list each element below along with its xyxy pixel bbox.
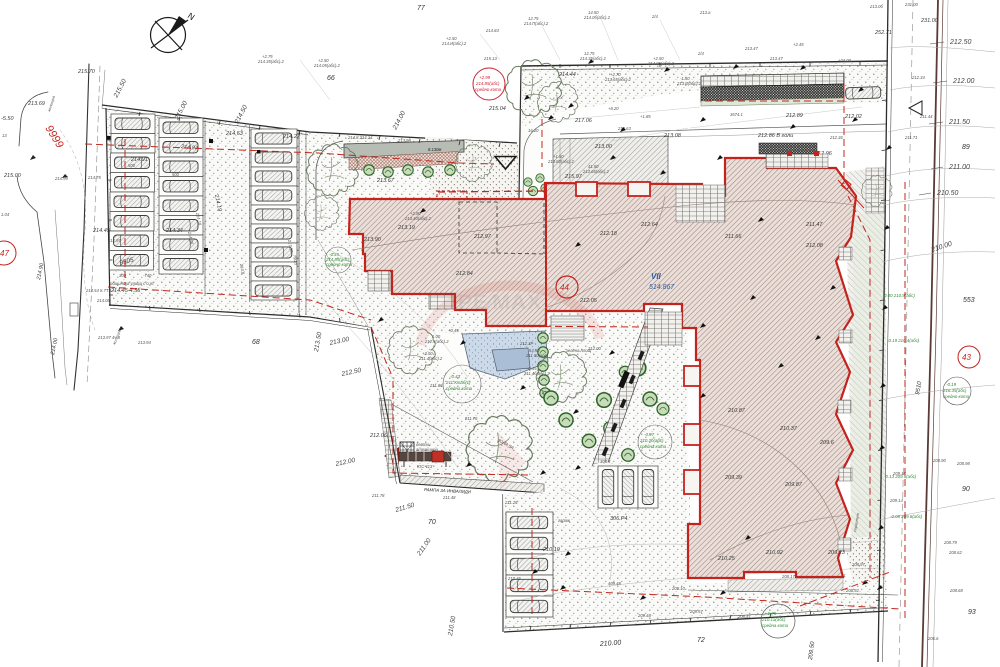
- svg-text:210.37: 210.37: [779, 426, 798, 432]
- svg-text:208.92: 208.92: [845, 588, 859, 593]
- svg-text:211.4б(абс).2: 211.4б(абс).2: [523, 371, 550, 376]
- svg-text:-0.97: -0.97: [644, 432, 655, 437]
- svg-text:210.46: 210.46: [507, 576, 521, 581]
- svg-text:77: 77: [417, 5, 426, 12]
- svg-text:211.86: 211.86: [429, 383, 443, 388]
- svg-text:211.76: 211.76: [464, 416, 478, 421]
- svg-text:210.25: 210.25: [717, 556, 736, 562]
- svg-text:214.05(абс).2: 214.05(абс).2: [647, 61, 675, 66]
- svg-text:212.00: 212.00: [952, 78, 975, 85]
- svg-text:213.а: 213.а: [699, 10, 711, 15]
- svg-text:300: 300: [119, 273, 127, 278]
- svg-text:213.40(абс).2: 213.40(абс).2: [404, 216, 432, 221]
- svg-text:214.84: 214.84: [485, 28, 499, 33]
- svg-text:214.И(абс).2: 214.И(абс).2: [441, 41, 467, 46]
- svg-text:215.70: 215.70: [77, 69, 96, 75]
- svg-text:213.08: 213.08: [663, 133, 682, 139]
- svg-text:-0.08 209.6(абс): -0.08 209.6(абс): [890, 514, 923, 519]
- svg-text:209.14: 209.14: [889, 498, 903, 503]
- svg-text:212.86 В голи: 212.86 В голи: [757, 133, 793, 139]
- svg-text:208.97: 208.97: [851, 562, 865, 567]
- svg-text:212.00: 212.00: [587, 346, 601, 351]
- svg-text:214.08: 214.08: [96, 298, 110, 303]
- svg-text:208.68: 208.68: [949, 588, 963, 593]
- svg-text:212.64: 212.64: [640, 222, 658, 228]
- svg-text:213.19: 213.19: [397, 225, 415, 231]
- svg-text:409.48: 409.48: [608, 581, 621, 586]
- svg-text:РЕ⁄МАХ: РЕ⁄МАХ: [458, 291, 542, 314]
- svg-text:252.71: 252.71: [874, 30, 892, 36]
- svg-text:2/4: 2/4: [651, 14, 658, 19]
- svg-text:206.6: 206.6: [927, 636, 939, 641]
- svg-text:213.90: 213.90: [363, 237, 382, 243]
- svg-text:210.19: 210.19: [542, 547, 560, 553]
- svg-text:70: 70: [428, 519, 436, 526]
- svg-text:209.48: 209.48: [637, 613, 651, 618]
- svg-text:212.02: 212.02: [844, 114, 862, 120]
- svg-text:211.71: 211.71: [904, 135, 918, 140]
- svg-text:217.06: 217.06: [574, 118, 593, 124]
- svg-text:89: 89: [962, 144, 970, 151]
- svg-text:214.45: 214.45: [92, 228, 111, 234]
- svg-text:211.50: 211.50: [948, 119, 970, 126]
- svg-text:214.44: 214.44: [558, 72, 576, 78]
- svg-text:208.41: 208.41: [737, 614, 751, 619]
- svg-text:215.04: 215.04: [488, 106, 506, 112]
- svg-text:500: 500: [172, 172, 180, 177]
- svg-text:8.130м: 8.130м: [428, 147, 441, 152]
- svg-text:+2.45: +2.45: [793, 42, 804, 47]
- svg-text:211.47: 211.47: [805, 222, 823, 228]
- svg-text:43: 43: [962, 353, 971, 362]
- svg-text:212.08: 212.08: [805, 243, 824, 249]
- svg-text:212.50: 212.50: [949, 39, 972, 46]
- svg-text:210.50: 210.50: [936, 190, 959, 197]
- svg-text:212.4(абс).2: 212.4(абс).2: [424, 339, 449, 344]
- svg-text:214.34: 214.34: [165, 228, 183, 234]
- svg-text:213.00: 213.00: [594, 144, 613, 150]
- svg-text:3674.1: 3674.1: [730, 112, 743, 117]
- svg-text:214.35(абс).2: 214.35(абс).2: [579, 56, 607, 61]
- svg-text:212.36: 212.36: [829, 135, 843, 140]
- svg-text:215.97: 215.97: [564, 174, 583, 180]
- svg-text:213.80(абс).2: 213.80(абс).2: [547, 159, 575, 164]
- svg-text:215.13: 215.13: [483, 56, 497, 61]
- svg-text:16.20: 16.20: [528, 128, 539, 133]
- svg-text:209.10: 209.10: [671, 586, 685, 591]
- svg-text:215.00: 215.00: [3, 173, 22, 179]
- svg-text:212.84: 212.84: [455, 271, 473, 277]
- svg-text:208.17: 208.17: [781, 574, 795, 579]
- svg-text:-0.19 210.4(абс): -0.19 210.4(абс): [887, 338, 920, 343]
- svg-text:213.0б: 213.0б: [869, 4, 883, 9]
- svg-text:213.69: 213.69: [27, 101, 45, 107]
- svg-text:68: 68: [252, 339, 260, 346]
- svg-text:553: 553: [963, 297, 975, 304]
- svg-text:213.67: 213.67: [376, 178, 395, 184]
- svg-text:213.65(абс).2: 213.65(абс).2: [604, 77, 632, 82]
- svg-text:213.98: 213.98: [397, 138, 411, 143]
- svg-text:210.87: 210.87: [727, 408, 746, 414]
- svg-text:90: 90: [962, 486, 970, 493]
- svg-text:ЮС-113: ЮС-113: [417, 464, 433, 469]
- svg-text:44: 44: [560, 283, 569, 292]
- svg-text:209.57: 209.57: [689, 609, 703, 614]
- svg-text:231.00: 231.00: [920, 18, 939, 24]
- svg-text:209.23: 209.23: [827, 550, 846, 556]
- svg-text:+04.00: +04.00: [838, 58, 852, 63]
- svg-text:210.1а(абс): 210.1а(абс): [761, 617, 786, 622]
- svg-text:средно кота: средно кота: [326, 262, 353, 267]
- svg-text:-740-: -740-: [143, 273, 153, 278]
- svg-text:213.47: 213.47: [769, 56, 783, 61]
- svg-text:214.99: 214.99: [54, 176, 68, 181]
- svg-text:72: 72: [697, 637, 705, 644]
- svg-text:211.00: 211.00: [948, 164, 970, 171]
- svg-text:214.05(абс).2: 214.05(абс).2: [313, 63, 341, 68]
- svg-text:214.27: 214.27: [282, 134, 301, 140]
- svg-text:средна кота: средна кота: [762, 623, 789, 628]
- svg-text:214.35(абс).2: 214.35(абс).2: [257, 59, 285, 64]
- svg-text:500: 500: [128, 163, 136, 168]
- svg-text:216.35(абс): 216.35(абс): [942, 388, 967, 393]
- svg-text:514.867: 514.867: [649, 284, 675, 291]
- svg-text:93: 93: [968, 609, 976, 616]
- svg-text:213.В(абс).2: 213.В(абс).2: [676, 81, 702, 86]
- svg-text:212.97: 212.97: [473, 234, 492, 240]
- svg-text:211.66: 211.66: [724, 234, 742, 240]
- svg-text:214.85(абс): 214.85(абс): [475, 81, 500, 86]
- svg-text:+2.99: +2.99: [479, 75, 491, 80]
- svg-text:209.39: 209.39: [724, 475, 742, 481]
- svg-text:208.90: 208.90: [932, 458, 946, 463]
- svg-text:-1.75: -1.75: [766, 611, 777, 616]
- svg-text:212.3Р: 212.3Р: [519, 341, 533, 346]
- svg-text:211.25: 211.25: [504, 500, 518, 505]
- svg-text:212.34: 212.34: [911, 75, 925, 80]
- svg-text:211.78: 211.78: [371, 493, 385, 498]
- svg-text:213.94: 213.94: [137, 340, 151, 345]
- svg-text:208.98: 208.98: [956, 461, 970, 466]
- svg-text:+1.85: +1.85: [640, 114, 651, 119]
- svg-text:13: 13: [2, 133, 7, 138]
- svg-text:-0.19: -0.19: [946, 382, 957, 387]
- svg-text:212.05: 212.05: [579, 298, 598, 304]
- svg-text:2/4: 2/4: [697, 51, 704, 56]
- svg-text:306.Р4: 306.Р4: [610, 516, 627, 522]
- svg-text:214.0б(абс).2: 214.0б(абс).2: [583, 15, 611, 20]
- svg-text:209.6: 209.6: [819, 440, 835, 446]
- svg-text:211.Ктаб(с): 211.Ктаб(с): [445, 380, 471, 385]
- svg-text:214.П(абс).2: 214.П(абс).2: [523, 21, 549, 26]
- svg-text:208.62: 208.62: [948, 550, 962, 555]
- svg-text:общинска улица с о.т.: общинска улица с о.т.: [110, 281, 154, 286]
- svg-text:213.66(абс).2: 213.66(абс).2: [582, 169, 610, 174]
- svg-text:+8.20: +8.20: [608, 106, 619, 111]
- svg-text:214.53: 214.53: [225, 131, 244, 137]
- svg-text:213.47: 213.47: [744, 46, 758, 51]
- svg-text:66: 66: [327, 75, 335, 82]
- svg-text:1.04: 1.04: [1, 212, 10, 217]
- svg-text:VII: VII: [651, 272, 662, 281]
- svg-text:214.8 214.14: 214.8 214.14: [347, 135, 373, 140]
- svg-text:210.3б(абс): 210.3б(абс): [639, 438, 664, 443]
- svg-text:-5.50: -5.50: [1, 116, 14, 122]
- svg-text:212.18: 212.18: [599, 231, 618, 237]
- svg-text:308.4: 308.4: [600, 459, 611, 464]
- svg-text:212.06: 212.06: [369, 433, 388, 439]
- svg-text:средно кота: средно кота: [943, 394, 970, 399]
- svg-text:211.50(абс): 211.50(абс): [525, 353, 549, 358]
- svg-text:211.48: 211.48: [442, 495, 456, 500]
- svg-text:211.4(абс).2: 211.4(абс).2: [418, 356, 443, 361]
- svg-text:212.89: 212.89: [785, 113, 803, 119]
- svg-text:208.79: 208.79: [943, 540, 957, 545]
- svg-text:211.44: 211.44: [919, 114, 933, 119]
- svg-text:средна кота: средна кота: [446, 386, 473, 391]
- svg-text:231.00: 231.00: [904, 2, 918, 7]
- svg-text:-0.43: -0.43: [450, 374, 461, 379]
- svg-text:209.87: 209.87: [784, 482, 803, 488]
- svg-text:-0.13 209.8(абс): -0.13 209.8(абс): [884, 474, 917, 479]
- svg-text:214.75: 214.75: [87, 175, 101, 180]
- svg-text:атракцион: атракцион: [416, 447, 438, 452]
- svg-text:средна кота: средна кота: [640, 444, 667, 449]
- svg-text:0.00 210.9(абс): 0.00 210.9(абс): [884, 293, 915, 298]
- svg-text:412.97: 412.97: [108, 238, 121, 243]
- svg-text:210.92: 210.92: [765, 550, 783, 556]
- svg-text:47: 47: [0, 249, 9, 258]
- svg-text:средно кота: средно кота: [475, 87, 502, 92]
- svg-text:214.54 К.ТТЗ: 214.54 К.ТТЗ: [85, 288, 112, 293]
- svg-text:гараж: гараж: [558, 518, 571, 523]
- svg-text:+0.45: +0.45: [448, 328, 459, 333]
